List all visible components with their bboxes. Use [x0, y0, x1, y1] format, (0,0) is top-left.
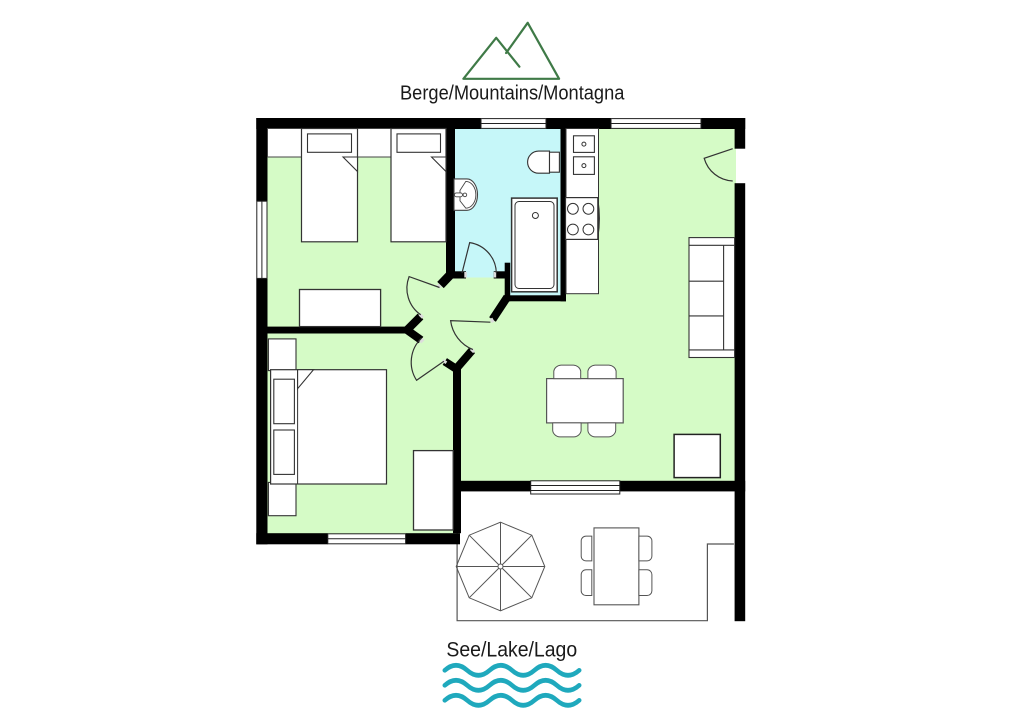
svg-text:Berge/Mountains/Montagna: Berge/Mountains/Montagna [400, 82, 625, 104]
svg-text:See/Lake/Lago: See/Lake/Lago [446, 638, 577, 661]
